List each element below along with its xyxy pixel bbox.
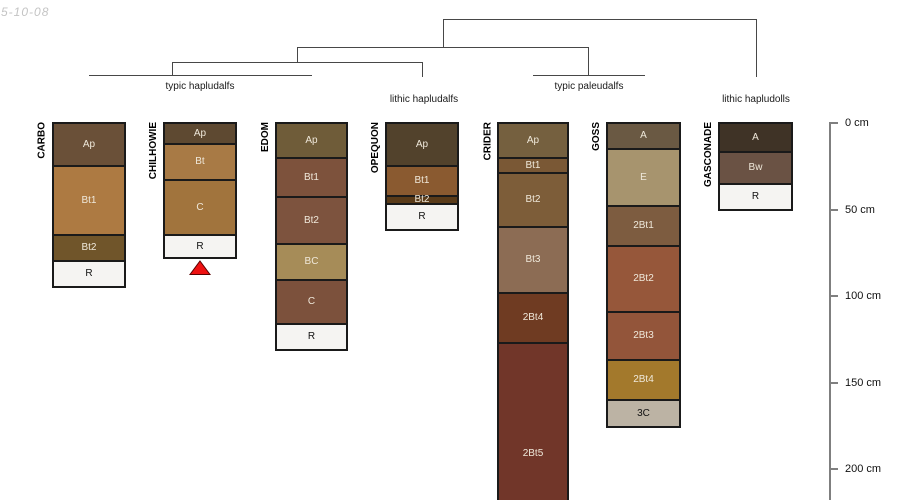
horizon-label: 2Bt4: [523, 313, 544, 323]
profile-column-gasconade: ABwR: [718, 122, 793, 211]
horizon-gasconade-a: A: [719, 123, 792, 152]
horizon-label: BC: [305, 257, 319, 267]
horizon-edom-ap: Ap: [276, 123, 347, 158]
horizon-goss-2bt4: 2Bt4: [607, 360, 680, 400]
horizon-edom-r: R: [276, 324, 347, 350]
group-label-lithic-hapludalfs: lithic hapludalfs: [390, 94, 458, 105]
horizon-label: E: [640, 173, 647, 183]
dendrogram-segment: [533, 75, 645, 76]
dendrogram-segment: [297, 47, 589, 48]
depth-axis-tick: [829, 122, 838, 124]
horizon-label: Ap: [527, 136, 539, 146]
group-label-typic-hapludalfs: typic hapludalfs: [166, 81, 235, 92]
horizon-opequon-ap: Ap: [386, 123, 458, 166]
horizon-goss-2bt2: 2Bt2: [607, 246, 680, 312]
horizon-goss-3c: 3C: [607, 400, 680, 427]
profile-name-goss: GOSS: [590, 122, 603, 151]
profile-column-opequon: ApBt1Bt2R: [385, 122, 459, 231]
horizon-label: 2Bt3: [633, 331, 654, 341]
horizon-label: Bt2: [525, 195, 540, 205]
horizon-label: Ap: [416, 140, 428, 150]
horizon-crider-2bt5: 2Bt5: [498, 343, 568, 500]
profile-name-opequon: OPEQUON: [369, 122, 382, 173]
horizon-label: R: [418, 212, 425, 222]
horizon-label: Bt2: [81, 243, 96, 253]
group-label-typic-paleudalfs: typic paleudalfs: [555, 81, 624, 92]
horizon-edom-bt1: Bt1: [276, 158, 347, 197]
dendrogram-segment: [172, 62, 423, 63]
horizon-goss-e: E: [607, 149, 680, 206]
horizon-opequon-r: R: [386, 204, 458, 230]
horizon-chilhowie-c: C: [164, 180, 236, 235]
horizon-label: Bt1: [304, 173, 319, 183]
horizon-goss-2bt3: 2Bt3: [607, 312, 680, 360]
profile-name-edom: EDOM: [259, 122, 272, 152]
horizon-label: 2Bt4: [633, 375, 654, 385]
horizon-label: R: [308, 332, 315, 342]
horizon-label: 3C: [637, 409, 650, 419]
horizon-label: R: [752, 192, 759, 202]
horizon-opequon-bt1: Bt1: [386, 166, 458, 196]
profile-name-crider: CRIDER: [481, 122, 494, 160]
horizon-label: Bt1: [414, 176, 429, 186]
profile-name-carbo: CARBO: [36, 122, 49, 159]
profile-name-gasconade: GASCONADE: [702, 122, 715, 187]
horizon-chilhowie-r: R: [164, 235, 236, 258]
horizon-gasconade-r: R: [719, 184, 792, 210]
horizon-label: Bt3: [525, 255, 540, 265]
profile-column-chilhowie: ApBtCR: [163, 122, 237, 259]
depth-axis-tick-label: 200 cm: [845, 462, 881, 476]
depth-axis-tick-label: 100 cm: [845, 289, 881, 303]
horizon-edom-bc: BC: [276, 244, 347, 280]
horizon-label: C: [196, 203, 203, 213]
horizon-label: Bw: [749, 163, 763, 173]
soil-profile-figure: 5-10-08 typic hapludalfslithic hapludalf…: [0, 0, 900, 500]
horizon-label: A: [752, 133, 759, 143]
horizon-crider-ap: Ap: [498, 123, 568, 158]
dendrogram-segment: [89, 75, 312, 76]
horizon-carbo-r: R: [53, 261, 125, 287]
horizon-gasconade-bw: Bw: [719, 152, 792, 184]
dendrogram-segment: [172, 62, 173, 76]
depth-axis-tick: [829, 382, 838, 384]
horizon-chilhowie-ap: Ap: [164, 123, 236, 144]
horizon-label: Bt2: [304, 216, 319, 226]
horizon-label: Bt1: [525, 161, 540, 171]
horizon-label: Bt1: [81, 196, 96, 206]
profile-column-carbo: ApBt1Bt2R: [52, 122, 126, 288]
horizon-label: R: [85, 269, 92, 279]
dendrogram-segment: [756, 19, 757, 77]
horizon-carbo-bt2: Bt2: [53, 235, 125, 261]
figure-date-label: 5-10-08: [1, 5, 49, 19]
dendrogram-segment: [443, 19, 444, 48]
horizon-label: 2Bt2: [633, 274, 654, 284]
horizon-label: Ap: [305, 136, 317, 146]
horizon-label: Bt: [195, 157, 204, 167]
horizon-goss-a: A: [607, 123, 680, 149]
depth-axis-tick-label: 0 cm: [845, 116, 869, 130]
horizon-opequon-bt2: Bt2: [386, 196, 458, 204]
horizon-label: 2Bt5: [523, 449, 544, 459]
horizon-label: A: [640, 131, 647, 141]
dendrogram-segment: [297, 47, 298, 63]
group-label-lithic-hapludolls: lithic hapludolls: [722, 94, 790, 105]
profile-column-crider: ApBt1Bt2Bt32Bt42Bt5: [497, 122, 569, 500]
dendrogram-segment: [443, 19, 757, 20]
horizon-crider-2bt4: 2Bt4: [498, 293, 568, 343]
horizon-chilhowie-bt: Bt: [164, 144, 236, 180]
horizon-carbo-ap: Ap: [53, 123, 125, 166]
horizon-crider-bt2: Bt2: [498, 173, 568, 227]
dendrogram-segment: [422, 62, 423, 77]
depth-axis-tick: [829, 209, 838, 211]
profile-column-edom: ApBt1Bt2BCCR: [275, 122, 348, 351]
horizon-goss-2bt1: 2Bt1: [607, 206, 680, 246]
dendrogram-segment: [588, 47, 589, 76]
horizon-crider-bt3: Bt3: [498, 227, 568, 293]
horizon-label: 2Bt1: [633, 221, 654, 231]
depth-axis-tick: [829, 295, 838, 297]
horizon-label: C: [308, 297, 315, 307]
horizon-crider-bt1: Bt1: [498, 158, 568, 173]
horizon-carbo-bt1: Bt1: [53, 166, 125, 235]
red-triangle-marker: [189, 260, 211, 281]
profile-name-chilhowie: CHILHOWIE: [147, 122, 160, 179]
horizon-edom-c: C: [276, 280, 347, 324]
profile-column-goss: AE2Bt12Bt22Bt32Bt43C: [606, 122, 681, 428]
horizon-edom-bt2: Bt2: [276, 197, 347, 244]
depth-axis-line: [829, 123, 831, 500]
horizon-label: R: [196, 242, 203, 252]
depth-axis-tick-label: 150 cm: [845, 376, 881, 390]
depth-axis-tick: [829, 468, 838, 470]
horizon-label: Ap: [83, 140, 95, 150]
horizon-label: Ap: [194, 129, 206, 139]
depth-axis-tick-label: 50 cm: [845, 203, 875, 217]
